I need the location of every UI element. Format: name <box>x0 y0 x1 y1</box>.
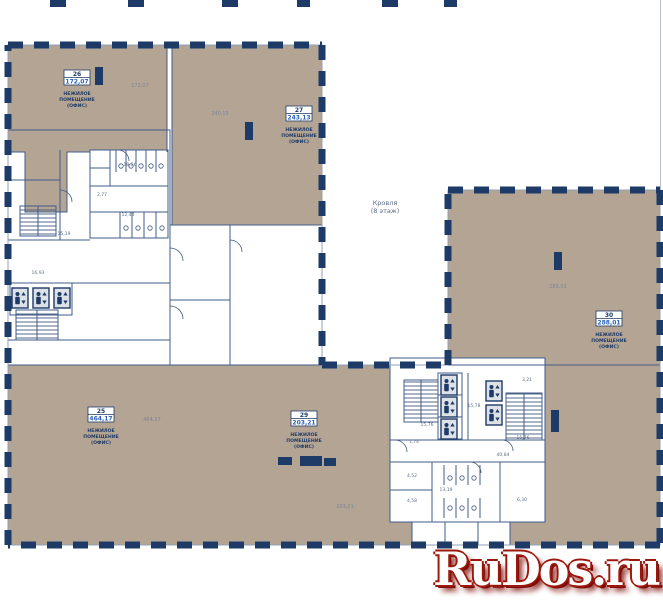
room-caption: (ОФИС) <box>289 139 309 145</box>
room-number: 27 <box>295 107 303 114</box>
room-number: 30 <box>605 312 613 319</box>
floor-plan-svg: 26 172,07 НЕЖИЛОЕ ПОМЕЩЕНИЕ (ОФИС) 27 24… <box>0 0 663 600</box>
area-value: 464,17 <box>143 417 161 423</box>
room-area: 288,01 <box>597 320 620 327</box>
room-caption: (ОФИС) <box>91 440 111 446</box>
area-value: 203,21 <box>336 504 354 510</box>
roof-note: Кровля (8 этаж) <box>371 199 399 215</box>
roof-note-line2: (8 этаж) <box>371 207 399 215</box>
room-number: 26 <box>73 71 81 78</box>
room-area: 203,21 <box>292 420 315 427</box>
elevator-icon <box>441 419 457 439</box>
room-size: 1,74 <box>409 439 419 445</box>
watermark-rudos-logo: RuDos.ru <box>433 546 659 592</box>
room-caption: НЕЖИЛОЕ <box>285 127 312 133</box>
room-caption: (ОФИС) <box>67 103 87 109</box>
area-value: 240,15 <box>211 111 229 117</box>
room-size: 15,76 <box>517 435 530 441</box>
elevator-icon <box>54 288 70 308</box>
room-size: 15,78 <box>468 403 481 409</box>
room-area: 464,17 <box>89 416 112 423</box>
room-area: 172,07 <box>65 79 88 86</box>
room-caption: (ОФИС) <box>599 344 619 350</box>
room-size: 15,76 <box>421 422 434 428</box>
elevator-icon <box>441 397 457 417</box>
room-number: 29 <box>300 412 308 419</box>
room-caption: ПОМЕЩЕНИЕ <box>286 438 322 444</box>
room-size: 4,58 <box>407 498 417 504</box>
elevator-icon <box>12 288 28 308</box>
room-caption: (ОФИС) <box>294 444 314 450</box>
room-caption: ПОМЕЩЕНИЕ <box>83 434 119 440</box>
room-number: 25 <box>97 408 105 415</box>
room-caption: ПОМЕЩЕНИЕ <box>59 97 95 103</box>
elevator-icon <box>486 381 502 401</box>
elevator-icon <box>441 375 457 395</box>
elevator-icon <box>486 405 502 425</box>
room-size: 16,93 <box>32 270 45 276</box>
area-value: 288,01 <box>549 284 567 290</box>
room-size: 40,84 <box>497 452 510 458</box>
elevator-icon <box>33 288 49 308</box>
room-size: 3,21 <box>522 377 532 383</box>
room-caption: ПОМЕЩЕНИЕ <box>281 133 317 139</box>
room-25-29-fill <box>8 365 660 545</box>
top-pier-marks <box>50 0 457 7</box>
area-value: 172,07 <box>131 83 149 89</box>
office-areas <box>8 45 660 545</box>
room-size: 15,19 <box>58 231 71 237</box>
room-caption: НЕЖИЛОЕ <box>290 432 317 438</box>
floorplan-page: 26 172,07 НЕЖИЛОЕ ПОМЕЩЕНИЕ (ОФИС) 27 24… <box>0 0 663 600</box>
room-30-fill <box>448 190 660 365</box>
room-caption: НЕЖИЛОЕ <box>63 91 90 97</box>
room-caption: НЕЖИЛОЕ <box>595 332 622 338</box>
room-size: 18,56 <box>124 162 137 168</box>
room-area: 243,13 <box>287 115 310 122</box>
room-caption: НЕЖИЛОЕ <box>87 428 114 434</box>
roof-note-line1: Кровля <box>373 199 398 207</box>
room-size: 4,52 <box>407 473 417 479</box>
room-size: 13,19 <box>440 487 453 493</box>
room-size: 12,44 <box>122 212 135 218</box>
room-size: 6,30 <box>517 497 527 503</box>
room-size: 2,77 <box>97 192 107 198</box>
room-caption: ПОМЕЩЕНИЕ <box>591 338 627 344</box>
